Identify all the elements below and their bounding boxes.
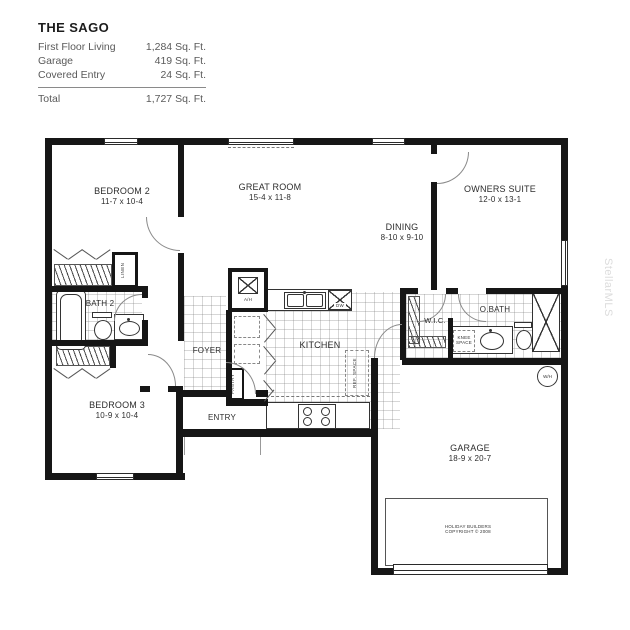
owners-suite-door-arc xyxy=(437,152,469,184)
room-dims: 15-4 x 11-8 xyxy=(200,193,340,203)
air-handler-unit xyxy=(238,277,258,294)
garage-wall-top xyxy=(402,358,568,365)
floor-plan-drawing: DW A/H PANTRY REF. SPACE LINEN KNEE SPAC… xyxy=(0,0,630,630)
great-room-slider xyxy=(228,138,294,145)
utility-wall-bottom xyxy=(226,399,268,406)
burner xyxy=(303,417,312,426)
bifold-line xyxy=(68,249,82,260)
bath2-label: BATH 2 xyxy=(60,299,140,309)
room-dims: 12-0 x 13-1 xyxy=(430,195,570,205)
toilet-tank xyxy=(92,312,112,318)
bedroom2-door-arc xyxy=(146,217,180,251)
air-handler-label: A/H xyxy=(238,297,258,302)
bifold-line xyxy=(96,368,110,379)
front-wall-left xyxy=(176,390,228,397)
slider-dash xyxy=(228,147,294,148)
exterior-wall-right-lower xyxy=(561,286,568,575)
hall-bedroom3-stub-a xyxy=(140,386,150,392)
bifold-line xyxy=(81,368,95,379)
bedroom3-label: BEDROOM 3 10-9 x 10-4 xyxy=(57,400,177,420)
dryer-outline xyxy=(234,344,260,364)
exterior-wall-left xyxy=(45,138,52,480)
room-name: GREAT ROOM xyxy=(200,182,340,193)
knee-space-label: KNEE SPACE xyxy=(453,335,475,345)
room-name: GARAGE xyxy=(400,443,540,454)
garage-wall-left xyxy=(371,358,378,575)
bifold-line xyxy=(96,249,110,260)
burner xyxy=(321,417,330,426)
room-name: DINING xyxy=(352,222,452,233)
water-heater: W/H xyxy=(537,366,558,387)
burner xyxy=(321,407,330,416)
sink-faucet-dot xyxy=(303,291,306,294)
washer-outline xyxy=(234,316,260,338)
front-door-arc xyxy=(226,362,256,394)
burner xyxy=(303,407,312,416)
porch-post-line xyxy=(184,437,185,455)
bedroom3-closet-wall xyxy=(110,346,116,368)
linen-label: LINEN xyxy=(121,256,126,284)
bedroom2-window xyxy=(104,138,138,145)
builder-copyright: HOLIDAY BUILDERS COPYRIGHT © 2008 xyxy=(405,524,531,534)
shower-stall xyxy=(532,292,560,352)
bedroom2-label: BEDROOM 2 11-7 x 10-4 xyxy=(62,186,182,206)
porch-post-line xyxy=(260,437,261,455)
great-room-label: GREAT ROOM 15-4 x 11-8 xyxy=(200,182,340,202)
front-wall-lower xyxy=(176,429,378,437)
obath-toilet-bowl xyxy=(516,330,532,350)
floor-plan-page: { "title_block": { "plan_name": "THE SAG… xyxy=(0,0,630,630)
dining-window xyxy=(372,138,405,145)
owners-suite-window xyxy=(561,240,568,286)
bifold-line xyxy=(53,249,67,260)
knee-space-text: KNEE SPACE xyxy=(456,335,472,345)
bifold-line xyxy=(68,368,82,379)
foyer-label: FOYER xyxy=(177,346,237,356)
hall-bedroom3-stub-b xyxy=(168,386,178,392)
bath2-wall-right-b xyxy=(142,320,148,340)
kitchen-sink-left xyxy=(287,294,304,307)
owners-suite-label: OWNERS SUITE 12-0 x 13-1 xyxy=(430,184,570,204)
bifold-line xyxy=(53,368,67,379)
bath2-wall-bottom xyxy=(52,340,148,346)
bedroom2-wall-right-lower xyxy=(178,253,184,341)
room-dims: 18-9 x 20-7 xyxy=(400,454,540,464)
dining-label: DINING 8-10 x 9-10 xyxy=(352,222,452,242)
garage-label: GARAGE 18-9 x 20-7 xyxy=(400,443,540,463)
water-heater-label: W/H xyxy=(543,374,552,379)
bedroom3-door-arc xyxy=(148,354,176,386)
room-name: BEDROOM 3 xyxy=(57,400,177,411)
kitchen-sink-right xyxy=(306,294,323,307)
obath-toilet-tank xyxy=(514,322,532,328)
owners-wall-south-c xyxy=(486,288,561,294)
garage-door xyxy=(393,564,548,575)
bedroom2-closet-rod xyxy=(54,264,112,286)
wic-label: W.I.C. xyxy=(406,316,464,325)
copyright-line2: COPYRIGHT © 2008 xyxy=(405,529,531,534)
room-name: BEDROOM 2 xyxy=(62,186,182,197)
obath-sink xyxy=(480,332,504,350)
room-name: OWNERS SUITE xyxy=(430,184,570,195)
bath2-wall-top xyxy=(52,286,148,292)
kitchen-label: KITCHEN xyxy=(270,340,370,351)
wic-rod-bottom xyxy=(408,336,446,348)
room-dims: 10-9 x 10-4 xyxy=(57,411,177,421)
upper-cabinet-dash xyxy=(266,396,370,397)
refrigerator-label: REF. SPACE xyxy=(353,354,358,392)
room-dims: 11-7 x 10-4 xyxy=(62,197,182,207)
entry-label: ENTRY xyxy=(182,413,262,423)
bifold-line xyxy=(81,249,95,260)
front-wall-right xyxy=(256,390,268,397)
dishwasher-label: DW xyxy=(334,303,346,308)
owners-wall-south-b xyxy=(446,288,458,294)
room-dims: 8-10 x 9-10 xyxy=(352,233,452,243)
obath-label: O.BATH xyxy=(450,305,540,315)
obath-faucet-dot xyxy=(489,329,492,332)
bedroom3-window xyxy=(96,473,134,480)
bath2-wall-right-a xyxy=(142,288,148,298)
bath2-sink xyxy=(119,321,140,336)
toilet-bowl xyxy=(94,320,112,340)
